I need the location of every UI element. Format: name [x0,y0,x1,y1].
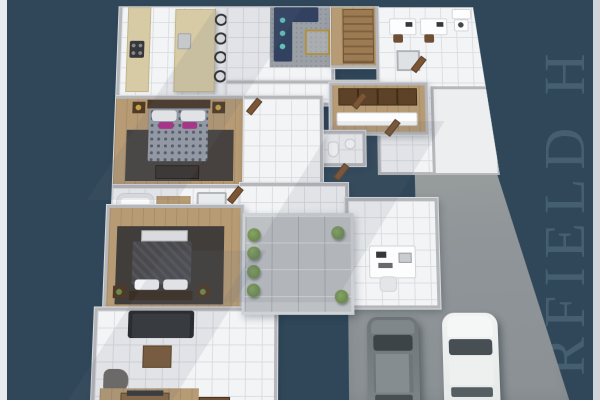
bedroom-2 [113,96,247,191]
floor-plan-render: RFIELD H [0,0,600,400]
sedan-rear-window [451,387,493,397]
sedan-car [442,313,501,400]
bar-stool [214,32,227,44]
powder-room [320,131,366,166]
right-border-strip [593,0,600,400]
suv-car [367,317,421,400]
courtyard [241,213,354,315]
nightstand [197,286,211,298]
bar-stool [214,51,227,63]
nightstand [113,286,127,298]
suv-rear-window [375,395,413,400]
cooktop [129,41,144,58]
keyboard [378,263,392,268]
bench-seat [141,230,188,241]
living-room [91,308,278,400]
study-desk [389,18,416,35]
island-sink [177,33,191,49]
desk-chair [393,34,403,42]
master-headboard [129,291,193,300]
sedan-roof [449,357,494,385]
potted-plant [247,247,260,260]
potted-plant [247,284,260,298]
desk-chair [424,34,434,42]
potted-plant [247,265,260,278]
potted-plant [331,226,344,239]
printer [398,253,411,263]
gold-coffee-table [305,30,330,55]
entry-stairs [331,7,379,68]
pillow [180,110,205,121]
family-room [226,7,334,83]
potted-plant [247,228,260,241]
office-desk [369,245,416,278]
sedan-windshield [449,339,493,355]
tv-console [120,393,170,400]
study-desk [420,18,448,35]
suv-windshield [373,335,413,351]
coffee-table-wood [142,345,172,367]
nightstand [212,102,225,114]
accent-pillow-magenta [158,122,173,129]
suv-hood [371,320,414,334]
master-duvet [132,241,192,284]
nightstand [132,102,145,114]
wardrobe-island-bench [336,112,417,126]
sectional-sofa-navy-chaise [274,7,293,61]
bed2-headboard [147,100,210,109]
washing-machine [454,19,469,31]
dresser [155,165,199,179]
desktop-computer [437,22,444,27]
pillow [163,279,188,289]
pillow [134,279,159,289]
home-office [345,198,440,309]
television [127,390,164,395]
closet-panel [397,88,417,105]
sedan-hood [447,316,493,337]
round-basin [345,139,356,150]
potted-plant [335,290,348,304]
bar-stool [215,14,228,26]
suv-roof [373,354,413,393]
master-bedroom [103,205,244,314]
computer-monitor [376,252,386,258]
laundry-counter [452,9,472,19]
garage-interior [430,86,497,173]
walk-in-wardrobe [329,83,428,135]
bar-stool [214,70,227,82]
pillow [152,110,177,121]
toilet [328,142,339,158]
office-chair [380,276,398,292]
kitchen-island [173,9,216,92]
house-plan [0,7,600,400]
desktop-computer [406,22,413,27]
kitchen [116,7,233,99]
accent-pillow-magenta [182,122,197,129]
closet-panel [378,88,398,105]
charcoal-sofa [128,311,195,338]
staircase [342,9,374,63]
